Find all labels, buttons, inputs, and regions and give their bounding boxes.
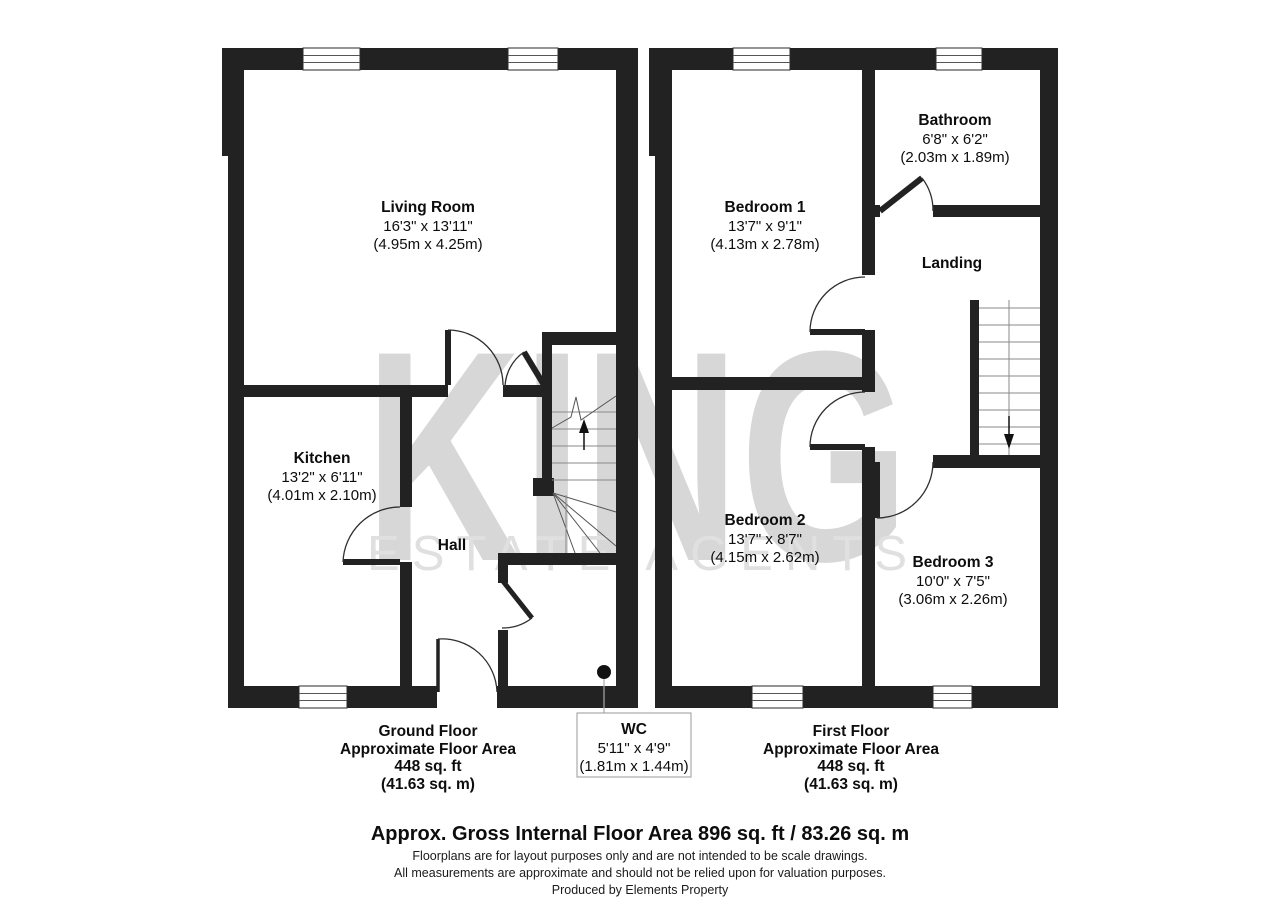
ground-floor-area-ft: 448 sq. ft — [394, 758, 461, 775]
ground-floor-area-label: Approximate Floor Area — [340, 741, 516, 758]
bathroom-metric: (2.03m x 1.89m) — [900, 149, 1009, 166]
disclaimer-line1: Floorplans are for layout purposes only … — [412, 849, 867, 863]
bedroom2-dims: 13'7" x 8'7" — [728, 531, 802, 548]
wc-metric: (1.81m x 1.44m) — [579, 758, 688, 775]
bedroom1-metric: (4.13m x 2.78m) — [710, 236, 819, 253]
bedroom3-label: Bedroom 3 — [913, 554, 994, 571]
bathroom-dims: 6'8" x 6'2" — [922, 131, 988, 148]
disclaimer-line2: All measurements are approximate and sho… — [394, 866, 886, 880]
first-floor-caption: First Floor Approximate Floor Area 448 s… — [763, 723, 939, 793]
ground-floor-title: Ground Floor — [378, 723, 477, 740]
living-room-dims: 16'3" x 13'11" — [383, 218, 473, 235]
first-floor-area-m: (41.63 sq. m) — [804, 776, 898, 793]
bathroom-door-leaf — [880, 178, 922, 211]
living-room-label: Living Room — [381, 199, 475, 216]
kitchen-label: Kitchen — [294, 450, 351, 467]
bedroom3-dims: 10'0" x 7'5" — [916, 573, 990, 590]
bathroom-label: Bathroom — [918, 112, 991, 129]
bedroom1-dims: 13'7" x 9'1" — [728, 218, 802, 235]
stairs-first — [979, 300, 1040, 455]
floorplan-page: KING ESTATE AGENTS — [0, 0, 1280, 905]
first-floor-area-ft: 448 sq. ft — [817, 758, 884, 775]
bedroom2-label: Bedroom 2 — [725, 512, 806, 529]
gross-area-total: Approx. Gross Internal Floor Area 896 sq… — [371, 823, 909, 845]
living-room-metric: (4.95m x 4.25m) — [373, 236, 482, 253]
bathroom-door-arc — [922, 178, 933, 211]
produced-by: Produced by Elements Property — [552, 883, 729, 897]
front-door-opening — [437, 686, 497, 708]
bedroom1-label: Bedroom 1 — [725, 199, 806, 216]
bedroom3-metric: (3.06m x 2.26m) — [898, 591, 1007, 608]
kitchen-metric: (4.01m x 2.10m) — [267, 487, 376, 504]
wc-leader-dot — [597, 665, 611, 679]
ground-floor-area-m: (41.63 sq. m) — [381, 776, 475, 793]
hall-label: Hall — [438, 537, 466, 554]
front-door-arc — [438, 639, 497, 692]
ground-floor-caption: Ground Floor Approximate Floor Area 448 … — [340, 723, 516, 793]
footer: Approx. Gross Internal Floor Area 896 sq… — [371, 823, 909, 897]
wc-dims: 5'11" x 4'9" — [598, 740, 671, 757]
bedroom2-metric: (4.15m x 2.62m) — [710, 549, 819, 566]
first-floor-area-label: Approximate Floor Area — [763, 741, 939, 758]
stair-down-arrowhead — [1004, 434, 1014, 449]
landing-label: Landing — [922, 255, 982, 272]
wc-label: WC — [621, 721, 647, 738]
floorplan-canvas: KING ESTATE AGENTS — [0, 0, 1280, 905]
first-floor-title: First Floor — [813, 723, 890, 740]
kitchen-dims: 13'2" x 6'11" — [281, 469, 362, 486]
